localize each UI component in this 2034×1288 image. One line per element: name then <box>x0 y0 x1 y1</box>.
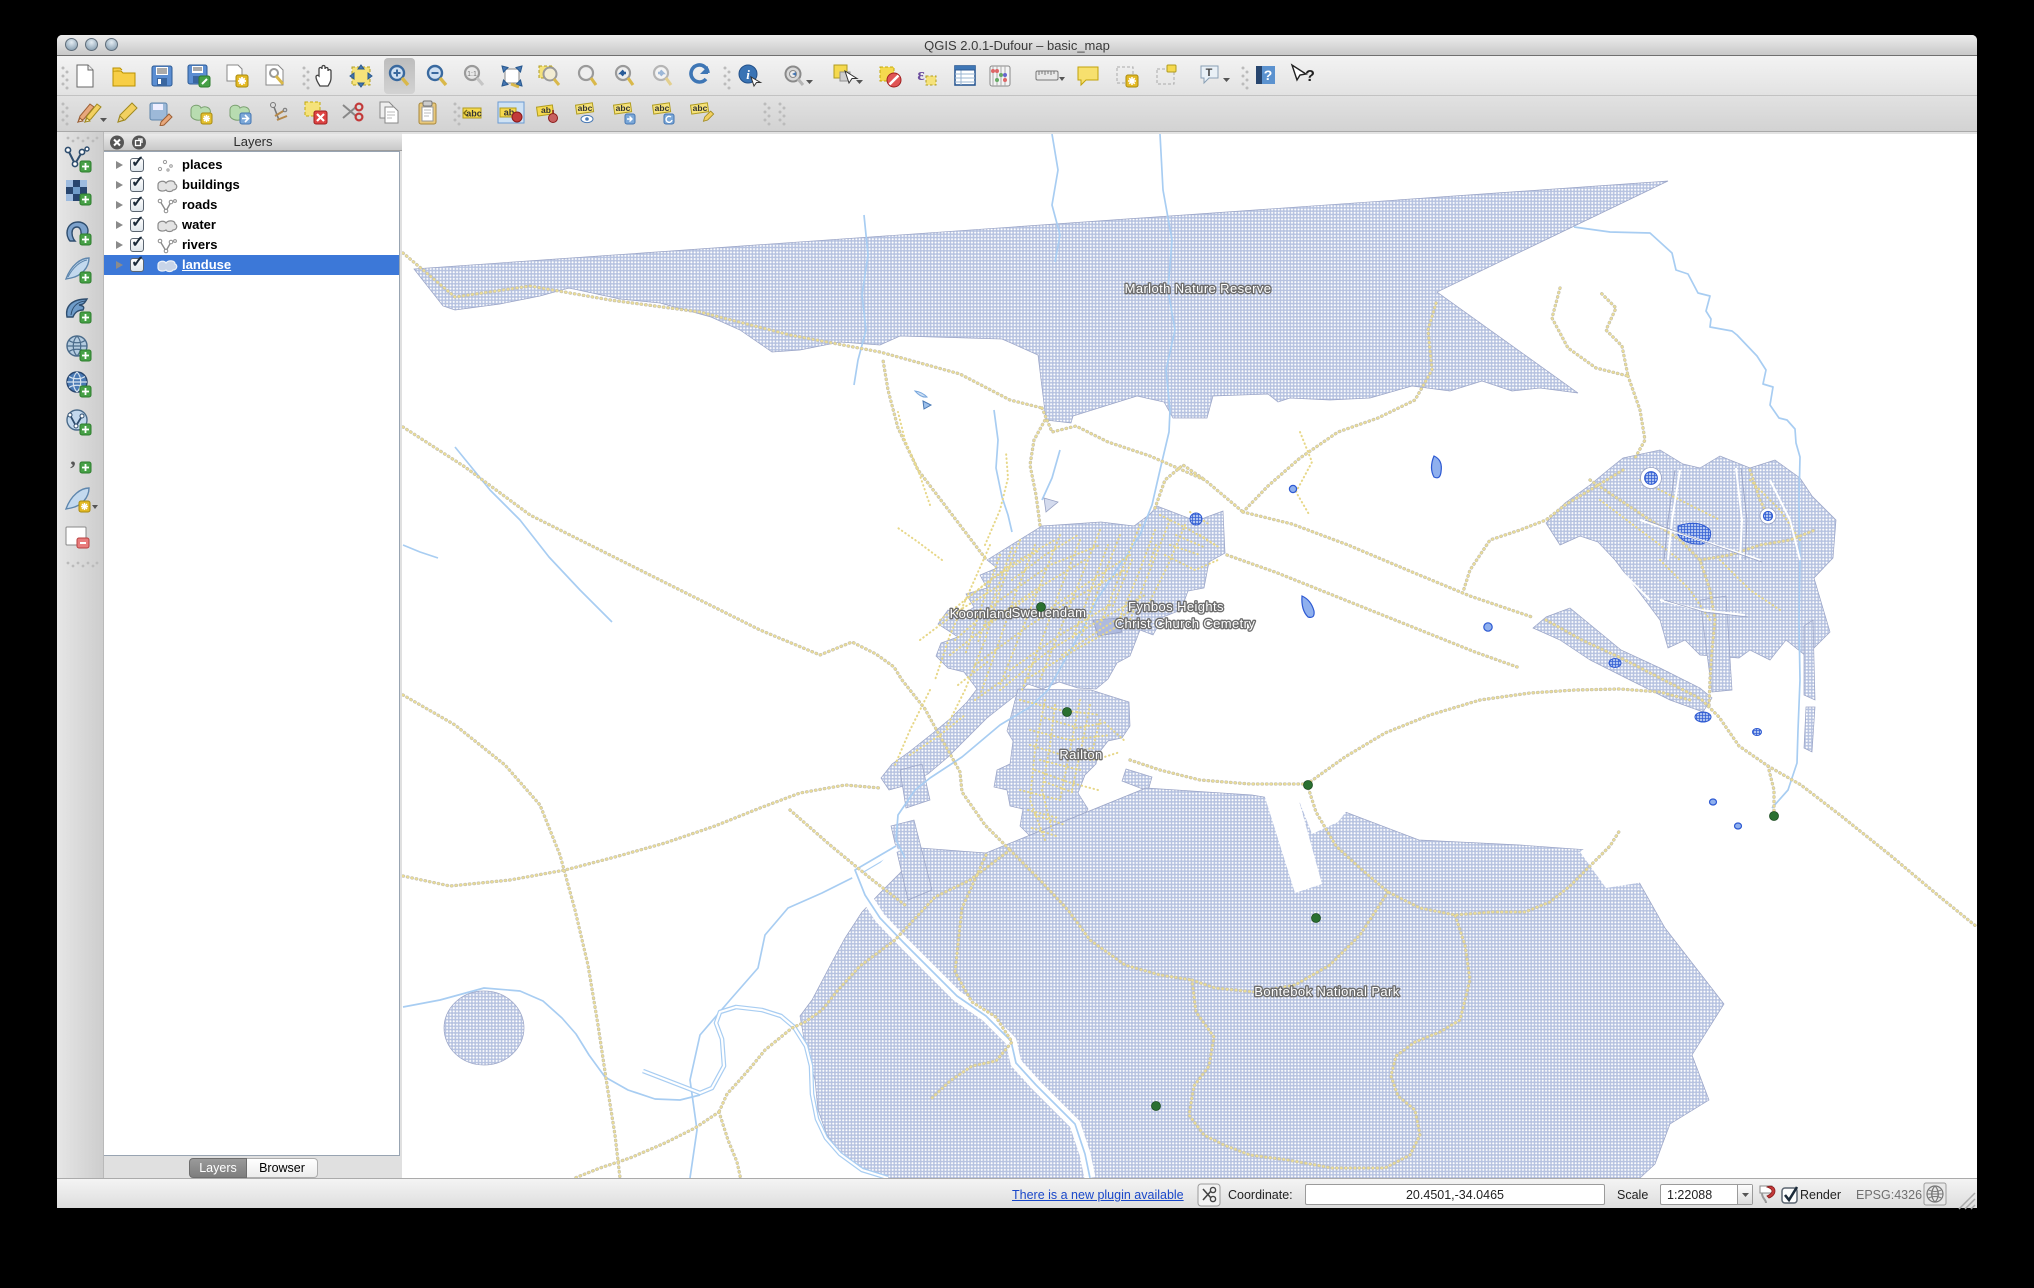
svg-text:abc: abc <box>466 109 482 119</box>
svg-text:?: ? <box>1264 67 1273 83</box>
svg-text:,: , <box>70 445 76 470</box>
svg-text:1:1: 1:1 <box>467 71 477 78</box>
svg-text:Fynbos Heights: Fynbos Heights <box>1128 599 1224 614</box>
svg-text:abc: abc <box>693 103 708 113</box>
svg-text:ab: ab <box>541 105 551 115</box>
svg-text:Koornland: Koornland <box>950 606 1013 621</box>
svg-text:Christ Church Cemetry: Christ Church Cemetry <box>1115 616 1256 631</box>
svg-text:abc: abc <box>655 103 670 113</box>
svg-text:Swellendam: Swellendam <box>1012 605 1087 620</box>
svg-text:Marloth Nature Reserve: Marloth Nature Reserve <box>1125 281 1272 296</box>
svg-text:T: T <box>1206 67 1213 79</box>
svg-text:ε: ε <box>917 65 924 84</box>
svg-text:?: ? <box>1305 68 1315 85</box>
svg-text:abc: abc <box>578 103 593 113</box>
svg-text:Bontebok National Park: Bontebok National Park <box>1254 984 1399 999</box>
svg-text:abc: abc <box>616 103 631 113</box>
svg-text:i: i <box>746 67 750 82</box>
svg-text:Railton: Railton <box>1059 747 1102 762</box>
